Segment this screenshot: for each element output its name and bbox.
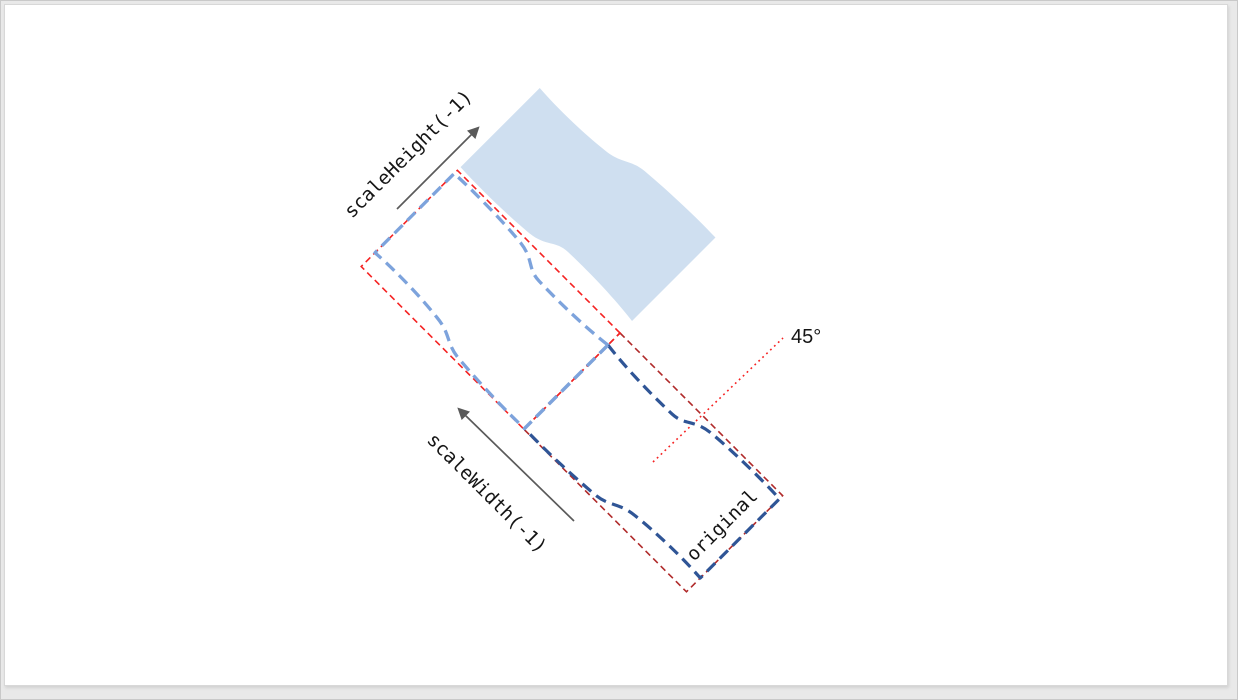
angle-label: 45° xyxy=(791,326,821,348)
page-background: scaleHeight(-1) scaleWidth(-1) original … xyxy=(0,0,1238,700)
scale-width-arrow xyxy=(465,415,574,521)
original-label: original xyxy=(682,485,762,565)
flipped-height-shape xyxy=(460,75,716,331)
original-shape-outline xyxy=(524,336,780,592)
scale-width-label: scaleWidth(-1) xyxy=(422,429,551,558)
angle-45-line xyxy=(653,338,783,462)
scale-height-label: scaleHeight(-1) xyxy=(340,86,477,223)
diagram-svg: scaleHeight(-1) scaleWidth(-1) original … xyxy=(0,0,1238,700)
